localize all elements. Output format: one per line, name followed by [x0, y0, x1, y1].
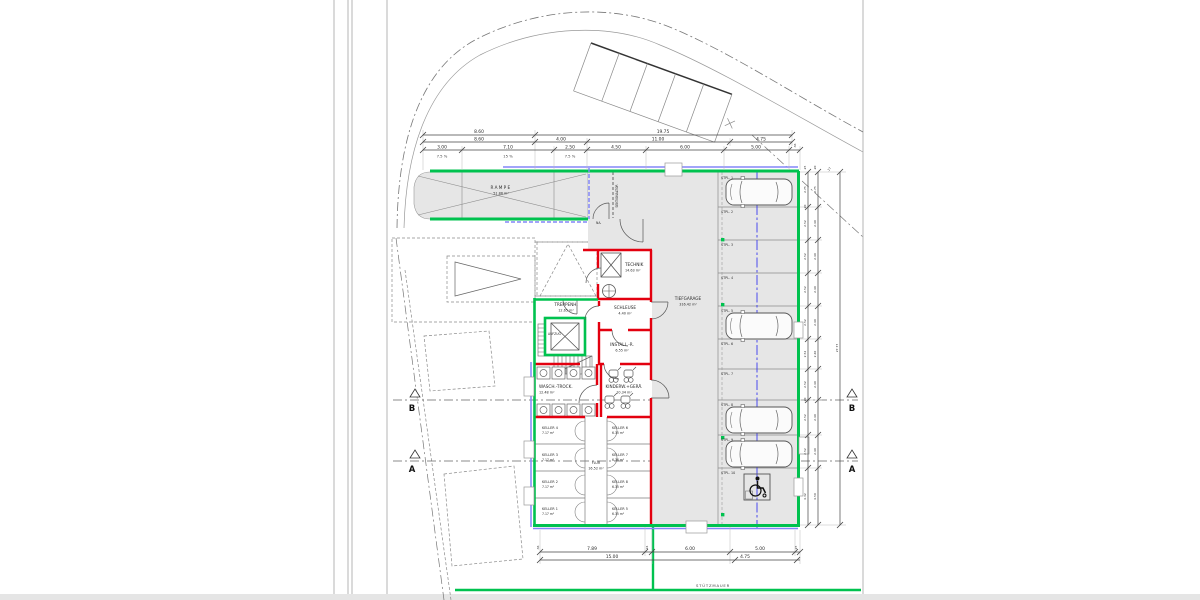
room-area-technik: 14.63 m² — [625, 269, 641, 273]
site-line-diagonal — [396, 238, 444, 600]
dim-rmid-1: .20 — [803, 398, 807, 403]
room-area-install: 6.55 m² — [615, 349, 629, 353]
stall-label-4: STPL. 4 — [721, 276, 733, 280]
dim-ra-9: 4.32 — [803, 493, 807, 500]
dimensions-top: 8.60 19.75 8.60 4.00 11.00 4.75 3.00 7.1… — [420, 129, 803, 170]
dim-ra-5: 2.52 — [803, 351, 807, 358]
stall-label-8: STPL. 8 — [721, 403, 733, 407]
room-label-keller5: KELLER 5 — [612, 507, 628, 511]
plan-svg: RAMPE 51.86 m² TECHNIK 14.63 m² TREPPENH… — [0, 0, 1200, 600]
dimensions-right: 2.75 2.52 2.52 2.52 2.52 2.52 2.52 2.52 … — [800, 166, 846, 528]
dim-top3-0: 3.00 — [437, 145, 447, 151]
dimensions-bottom: .36 7.89 .24 6.00 5.00 .25 15.00 4.75 — [536, 527, 803, 564]
section-letter-b-right: B — [849, 404, 855, 414]
room-area-kinderwagen: 10.34 m² — [616, 391, 632, 395]
dim-ra-8: 2.52 — [803, 448, 807, 455]
elevator-icon — [545, 318, 585, 355]
dim-rb-7: 2.40 — [813, 414, 817, 421]
room-label-flur: FLUR — [592, 461, 601, 465]
stall-label-9: STPL. 9 — [721, 438, 733, 442]
stall-label-3: STPL. 3 — [721, 243, 733, 247]
slope-label-2: 7.5 % — [565, 154, 576, 159]
ramp-floor — [414, 172, 588, 219]
stall-label-2: STPL. 2 — [721, 210, 733, 214]
dim-top3-5: 5.00 — [751, 145, 761, 151]
dim-b1-5: .25 — [794, 546, 798, 551]
retaining-wall-label: STÜTZMAUER — [696, 583, 730, 588]
room-label-keller1: KELLER 1 — [542, 507, 558, 511]
dim-top3-2: 2.50 — [565, 145, 575, 151]
dim-rsmall-1: .20 — [813, 166, 817, 171]
dim-rmid-0: .20 — [803, 205, 807, 210]
room-label-wasch: WASCH.-TROCK. — [539, 384, 573, 389]
dim-b1-4: 5.00 — [755, 546, 765, 552]
dim-top3-4: 6.00 — [680, 145, 690, 151]
na-label: NA. — [596, 221, 601, 225]
room-label-schleuse: SCHLEUSE — [614, 305, 636, 310]
room-area-keller2: 7.17 m² — [542, 485, 555, 489]
room-label-technik: TECHNIK — [624, 262, 644, 267]
room-label-tiefgarage: TIEFGARAGE — [674, 296, 702, 301]
dim-b2-0: 15.00 — [606, 554, 619, 560]
dim-b1-1: 7.89 — [587, 546, 597, 552]
stall-label-7: STPL. 7 — [721, 372, 733, 376]
dim-ra-1: 2.52 — [803, 220, 807, 227]
section-letter-b-left: B — [409, 404, 415, 414]
car-stall-5 — [726, 311, 792, 342]
dim-rb-4: 2.40 — [813, 319, 817, 326]
slope-label-0: 7.5 % — [437, 154, 448, 159]
dim-top3-1: 7.10 — [503, 145, 513, 151]
room-label-keller7: KELLER 7 — [612, 453, 628, 457]
room-label-rampe: RAMPE — [491, 185, 512, 190]
room-area-keller3: 7.17 m² — [542, 458, 555, 462]
dim-b1-3: 6.00 — [685, 546, 695, 552]
stall-label-10: STPL. 10 — [721, 471, 735, 475]
dim-ra-0: 2.75 — [803, 186, 807, 193]
dim-top2-3: 4.75 — [756, 137, 766, 143]
floor-plan-drawing: RAMPE 51.86 m² TECHNIK 14.63 m² TREPPENH… — [0, 0, 1200, 600]
car-stall-1 — [726, 177, 792, 208]
room-area-keller1: 7.17 m² — [542, 512, 555, 516]
room-label-keller4: KELLER 4 — [542, 426, 558, 430]
dim-top2-1: 4.00 — [556, 137, 566, 143]
dim-top2-0: 8.60 — [474, 137, 484, 143]
room-area-rampe: 51.86 m² — [493, 192, 509, 196]
room-area-keller7: 6.36 m² — [612, 458, 625, 462]
dim-top1-1: 19.75 — [657, 129, 670, 135]
dim-rb-2: 2.40 — [813, 253, 817, 260]
stall-label-5: STPL. 5 — [721, 309, 733, 313]
dim-b1-2: .24 — [645, 546, 649, 551]
upper-floor-dashed-outlines — [392, 238, 598, 600]
room-label-kinderwagen: KINDERW.+GERÄ. — [606, 384, 643, 389]
room-area-wasch: 12.48 m² — [539, 391, 555, 395]
room-area-keller6: 6.35 m² — [612, 431, 625, 435]
room-area-keller5: 6.35 m² — [612, 512, 625, 516]
dim-rsmall-2: .17 — [826, 166, 832, 172]
room-label-keller8: KELLER 8 — [612, 480, 628, 484]
room-label-install: INSTALL.-R. — [610, 342, 634, 347]
dim-rb-0: 2.75 — [813, 186, 817, 193]
dim-rb-1: 2.40 — [813, 220, 817, 227]
room-area-treppenhaus: 12.65 m² — [558, 309, 574, 313]
room-label-aufzug: AUFZUG — [548, 332, 562, 336]
dim-rb-9: 4.50 — [813, 493, 817, 500]
room-area-keller4: 7.17 m² — [542, 431, 555, 435]
stall-label-1: STPL. 1 — [721, 176, 733, 180]
dim-b2-1: 4.75 — [740, 554, 750, 560]
dim-ra-3: 2.52 — [803, 286, 807, 293]
room-area-keller8: 6.35 m² — [612, 485, 625, 489]
dim-ra-6: 2.52 — [803, 381, 807, 388]
dim-rb-3: 2.40 — [813, 286, 817, 293]
dim-b1-0: .36 — [536, 546, 540, 551]
dim-top2-2: 11.00 — [652, 137, 665, 143]
room-label-keller6: KELLER 6 — [612, 426, 628, 430]
car-stall-9 — [726, 439, 792, 470]
dim-rb-6: 2.40 — [813, 381, 817, 388]
extension-lines-bottom — [540, 527, 800, 564]
survey-cross — [725, 118, 735, 128]
section-letter-a-right: A — [849, 465, 856, 475]
room-label-keller3: KELLER 3 — [542, 453, 558, 457]
entrance-arrow-above — [455, 262, 521, 296]
slope-label-1: 15 % — [503, 154, 513, 159]
dim-top3-3: 4.50 — [611, 145, 621, 151]
car-stall-8 — [726, 405, 792, 436]
room-label-keller2: KELLER 2 — [542, 480, 558, 484]
dim-ra-4: 2.52 — [803, 319, 807, 326]
dim-rb-5: 2.40 — [813, 351, 817, 358]
dim-ra-7: 2.52 — [803, 414, 807, 421]
technik-equipment-icon — [601, 253, 621, 298]
room-label-treppenhaus: TREPPENH. — [553, 302, 577, 307]
sectional-door-label: SEKTIONALTOR — [615, 184, 619, 208]
dim-top1-0: 8.60 — [474, 129, 484, 135]
dim-ra-2: 2.52 — [803, 253, 807, 260]
room-area-schleuse: 4.40 m² — [618, 312, 632, 316]
page-bottom-edge — [0, 594, 1200, 600]
dim-rb-8: 2.40 — [813, 448, 817, 455]
section-letter-a-left: A — [409, 465, 416, 475]
stall-label-6: STPL. 6 — [721, 342, 733, 346]
dim-top3-wall: .36 — [793, 144, 797, 149]
room-area-tiefgarage: 316.42 m² — [679, 303, 697, 307]
room-area-flur: 16.52 m² — [588, 467, 604, 471]
dim-rsmall-0: .25 — [803, 166, 807, 171]
dim-right-total: 27.77 — [835, 344, 839, 353]
